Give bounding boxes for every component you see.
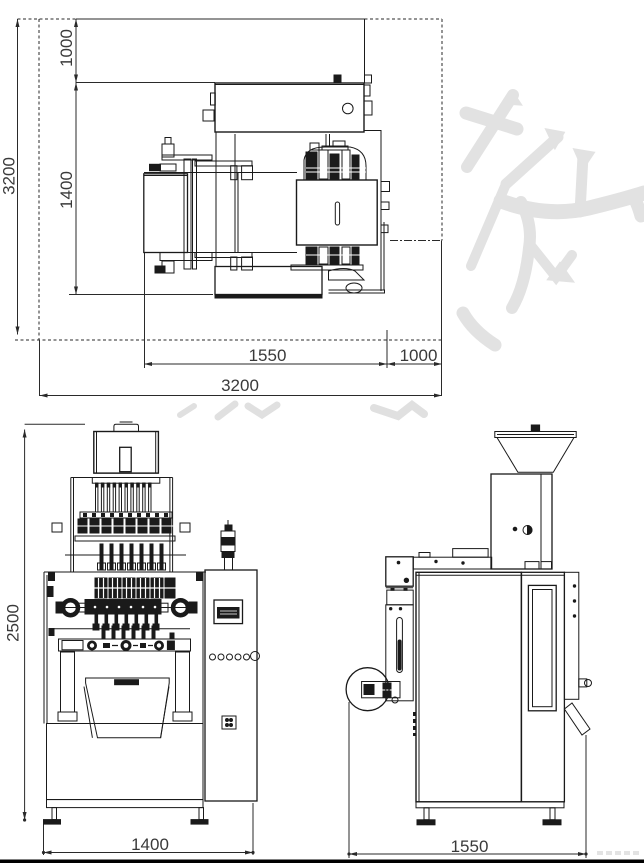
svg-text:1550: 1550 <box>451 837 489 856</box>
svg-text:1000: 1000 <box>400 346 438 365</box>
svg-text:1400: 1400 <box>57 171 76 209</box>
svg-text:3200: 3200 <box>0 157 19 195</box>
svg-text:2500: 2500 <box>4 604 23 642</box>
svg-text:1000: 1000 <box>57 29 76 67</box>
svg-text:3200: 3200 <box>221 376 259 395</box>
svg-text:1550: 1550 <box>249 346 287 365</box>
svg-text:1400: 1400 <box>131 835 169 854</box>
